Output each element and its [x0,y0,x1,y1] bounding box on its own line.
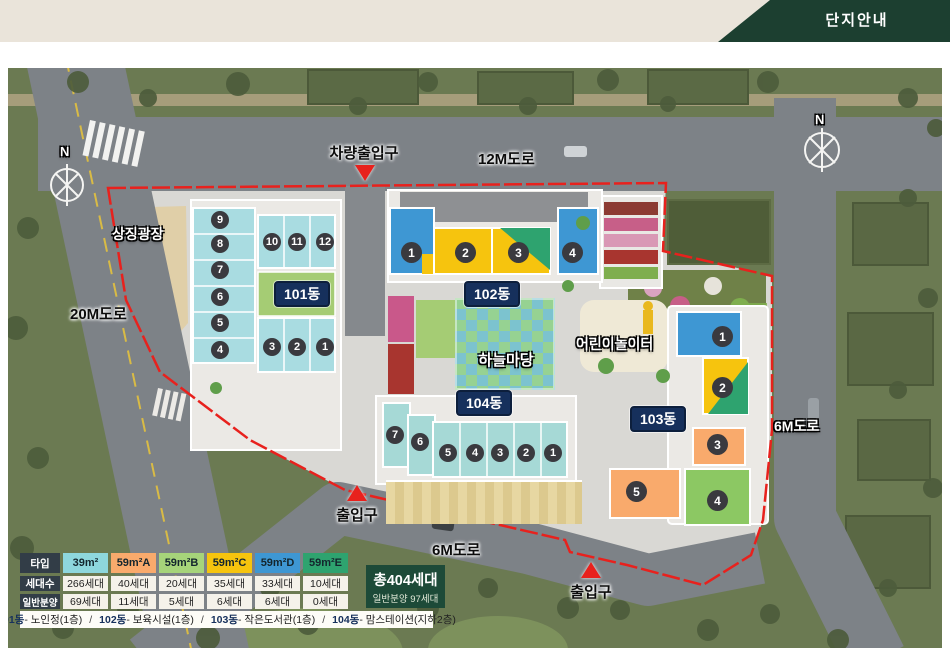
entrance-arrow-southeast-icon [581,562,601,578]
vehicle-entrance-arrow-icon [355,165,375,181]
compass-n-west: N [60,144,69,159]
sky-yard-playdeck [455,298,555,390]
unit-circle-102: 4 [562,242,583,263]
car [564,146,587,157]
wood-deck [386,480,582,524]
legend-type-59a: 59m²A [111,553,156,573]
road-label-20m: 20M도로 [70,303,127,324]
compass-n-east: N [815,112,824,127]
unit-circle-104: 1 [544,444,562,462]
entrance-label-southeast: 출입구 [556,581,626,602]
flower-bed [388,296,414,342]
households-59a: 40세대 [111,576,156,591]
unit-circle-101: 3 [263,338,281,356]
total-households-box: 총404세대 일반분양 97세대 [366,565,445,608]
road-label-12m: 12M도로 [478,148,535,169]
households-59c: 35세대 [207,576,252,591]
legend-grid: 타입 39m² 59m²A 59m²B 59m²C 59m²D 59m²E 세대… [20,553,348,609]
unit-circle-103: 5 [626,481,647,502]
play-structure [643,310,653,334]
legend-type-59d: 59m²D [255,553,300,573]
note-separator: / [201,614,204,626]
total-households: 총404세대 [373,569,437,590]
legend-type-59c: 59m²C [207,553,252,573]
unit-circle-101: 10 [263,233,281,251]
building-tag-102: 102동 [464,281,520,307]
lawn [416,300,456,358]
unit-circle-101: 4 [211,341,229,359]
general-39: 69세대 [63,594,108,609]
unit-circle-102: 3 [508,242,529,263]
page-title-ribbon: 단지안내 [718,0,950,42]
unit-circle-104: 3 [491,444,509,462]
unit-circle-102: 2 [455,242,476,263]
general-59c: 6세대 [207,594,252,609]
households-59d: 33세대 [255,576,300,591]
unit-circle-104: 5 [439,444,457,462]
legend-type-59b: 59m²B [159,553,204,573]
symbol-plaza-label: 상징광장 [112,224,164,244]
note-101: 101동 [8,612,24,627]
households-39: 266세대 [63,576,108,591]
complex-guide-page: 단지안내 [0,0,950,654]
legend-row-header-general: 일반분양 [20,594,60,609]
playground-label: 어린이놀이터 [576,334,653,354]
unit-circle-104: 7 [386,426,404,444]
unit-circle-103: 3 [707,434,728,455]
building-facility-note: 101동 - 노인정(1층) / 102동 - 보육시설(1층) / 103동 … [20,611,433,628]
unit-circle-103: 4 [707,490,728,511]
note-104: 104동 [332,612,359,627]
legend-type-39: 39m² [63,553,108,573]
unit-circle-101: 5 [211,314,229,332]
note-102: 102동 [99,612,126,627]
unit-circle-101: 9 [211,211,229,229]
top-bar: 단지안내 [0,0,950,42]
unit-type-legend: 타입 39m² 59m²A 59m²B 59m²C 59m²D 59m²E 세대… [20,553,450,609]
unit-circle-102: 1 [401,242,422,263]
unit-circle-101: 8 [211,235,229,253]
note-103: 103동 [211,612,238,627]
building-tag-103: 103동 [630,406,686,432]
general-59d: 6세대 [255,594,300,609]
note-104-desc: - 맘스테이션(지하2층) [359,612,456,627]
road-label-6m-east: 6M도로 [774,416,819,436]
general-59b: 5세대 [159,594,204,609]
unit-circle-101: 7 [211,261,229,279]
unit-circle-101: 6 [211,288,229,306]
entrance-label-southwest: 출입구 [322,504,392,525]
households-59e: 10세대 [303,576,348,591]
note-separator: / [89,614,92,626]
building-102 [388,190,602,282]
vehicle-entrance-label: 차량출입구 [314,142,414,163]
general-59e: 0세대 [303,594,348,609]
total-general-sale: 일반분양 97세대 [373,591,439,605]
unit-circle-101: 12 [316,233,334,251]
note-103-desc: - 작은도서관(1층) [238,612,315,627]
unit-circle-103: 2 [712,377,733,398]
entrance-arrow-southwest-icon [347,485,367,501]
households-59b: 20세대 [159,576,204,591]
sky-yard-label: 하늘마당 [458,349,554,370]
legend-row-header-households: 세대수 [20,576,60,591]
unit-circle-101: 11 [288,233,306,251]
legend-type-59e: 59m²E [303,553,348,573]
site-plan-map: N N 차량출입구 12M도로 20M도로 6M도로 6M도로 출입구 출입구 … [8,68,942,648]
page-title: 단지안내 [718,0,950,42]
unit-circle-101: 1 [316,338,334,356]
building-tag-101: 101동 [274,281,330,307]
legend-row-header-type: 타입 [20,553,60,573]
note-102-desc: - 보육시설(1층) [126,612,194,627]
unit-circle-104: 6 [411,433,429,451]
unit-circle-104: 4 [466,444,484,462]
general-59a: 11세대 [111,594,156,609]
unit-circle-104: 2 [517,444,535,462]
building-tag-104: 104동 [456,390,512,416]
driveway [345,186,385,336]
note-101-desc: - 노인정(1층) [24,612,82,627]
flower-bed [388,344,414,394]
note-separator: / [322,614,325,626]
unit-circle-103: 1 [712,326,733,347]
unit-circle-101: 2 [288,338,306,356]
